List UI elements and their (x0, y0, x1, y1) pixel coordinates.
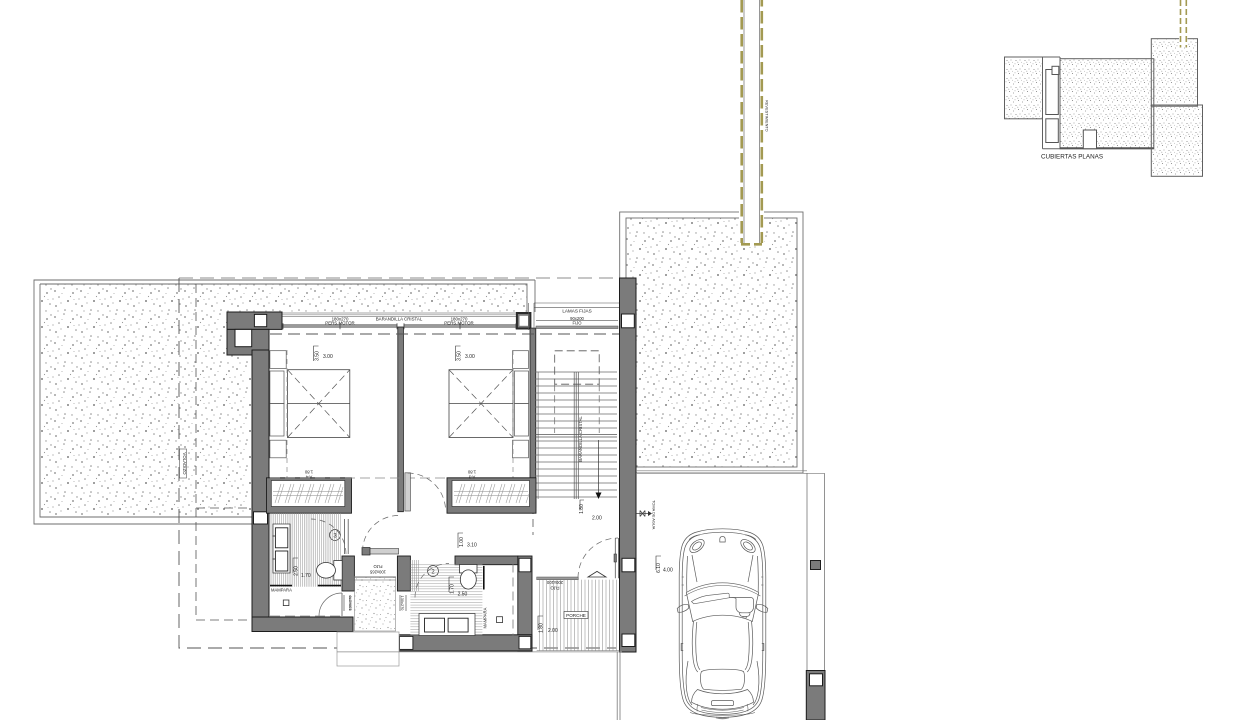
svg-text:PORCHE: PORCHE (566, 613, 586, 618)
svg-text:BARANDILLA CRISTAL: BARANDILLA CRISTAL (578, 416, 583, 462)
svg-text:CUBIERTAS PLANAS: CUBIERTAS PLANAS (1041, 154, 1103, 161)
svg-text:3.50: 3.50 (315, 351, 321, 361)
svg-text:MAMPARA: MAMPARA (483, 607, 488, 628)
svg-text:TOMA DE AGUA: TOMA DE AGUA (652, 500, 657, 530)
svg-text:1.70: 1.70 (450, 584, 456, 594)
svg-text:1.80: 1.80 (467, 470, 476, 475)
svg-text:FIJO: FIJO (373, 564, 383, 569)
svg-text:A-3: A-3 (468, 474, 475, 479)
svg-text:FIJO: FIJO (550, 586, 560, 591)
svg-text:PERS.MOTOR: PERS.MOTOR (444, 320, 473, 325)
svg-text:2.00: 2.00 (592, 516, 602, 522)
svg-text:REVESTIMIENTO: REVESTIMIENTO (765, 100, 770, 132)
svg-text:3.50: 3.50 (457, 351, 463, 361)
svg-text:3.00: 3.00 (465, 354, 475, 360)
svg-text:130x270: 130x270 (348, 595, 353, 611)
svg-text:2.50: 2.50 (458, 592, 468, 598)
svg-text:4.00: 4.00 (663, 568, 673, 574)
svg-text:130x270: 130x270 (400, 596, 405, 612)
svg-text:1.80: 1.80 (579, 504, 585, 514)
svg-text:1.80: 1.80 (539, 623, 545, 633)
svg-text:3.00: 3.00 (323, 354, 333, 360)
svg-text:BARANDILLA CRISTAL: BARANDILLA CRISTAL (376, 316, 423, 321)
svg-text:VOLADIZO: VOLADIZO (182, 452, 187, 475)
svg-text:1.00: 1.00 (459, 537, 465, 547)
svg-text:LAMAS FIJAS: LAMAS FIJAS (562, 309, 591, 314)
svg-text:MAMPARA: MAMPARA (271, 588, 292, 593)
svg-text:2.50: 2.50 (294, 566, 300, 576)
svg-text:3.10: 3.10 (467, 543, 477, 549)
svg-text:6.10: 6.10 (656, 563, 662, 573)
svg-text:2.00: 2.00 (548, 628, 558, 634)
svg-text:PERS.MOTOR: PERS.MOTOR (325, 320, 354, 325)
svg-text:A-4: A-4 (305, 474, 312, 479)
svg-text:FIJO: FIJO (572, 321, 582, 326)
svg-text:1.70: 1.70 (301, 573, 311, 579)
svg-text:200x100: 200x100 (546, 580, 563, 585)
svg-text:1.80: 1.80 (304, 470, 313, 475)
svg-text:100x265: 100x265 (369, 570, 386, 575)
